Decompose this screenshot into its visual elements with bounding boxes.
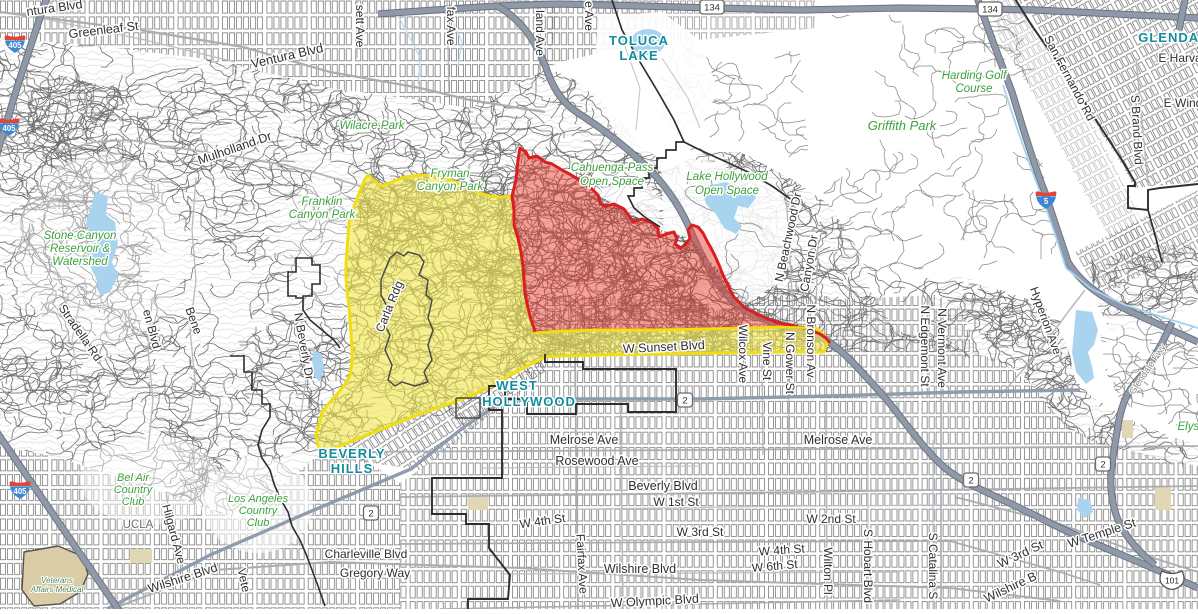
svg-text:Club: Club <box>122 496 145 508</box>
svg-text:405: 405 <box>8 41 22 50</box>
svg-text:2: 2 <box>368 509 373 520</box>
svg-text:HILLS: HILLS <box>331 461 374 476</box>
svg-text:Lake Hollywood: Lake Hollywood <box>686 171 768 183</box>
svg-text:Melrose Ave: Melrose Ave <box>804 433 873 447</box>
svg-text:Rosewood Ave: Rosewood Ave <box>555 454 638 468</box>
svg-text:Wilacre Park: Wilacre Park <box>339 120 405 132</box>
svg-text:Country: Country <box>114 484 154 496</box>
svg-text:134: 134 <box>704 3 720 14</box>
svg-text:Vine St: Vine St <box>760 342 774 381</box>
svg-text:Wilton Pl: Wilton Pl <box>821 547 835 594</box>
svg-text:GLENDALE: GLENDALE <box>1138 30 1198 45</box>
svg-text:Fryman: Fryman <box>431 168 470 180</box>
svg-text:e Ave: e Ave <box>582 1 596 31</box>
svg-text:W 1st St: W 1st St <box>653 495 699 509</box>
svg-text:N Edgemont St: N Edgemont St <box>918 305 932 387</box>
svg-text:Harding Golf: Harding Golf <box>942 70 1008 82</box>
svg-text:Wilshire Blvd: Wilshire Blvd <box>604 562 676 576</box>
svg-text:Beverly Blvd: Beverly Blvd <box>628 479 698 493</box>
svg-text:W 2nd St: W 2nd St <box>806 512 856 526</box>
svg-text:Reservoir &: Reservoir & <box>50 243 110 255</box>
svg-text:Canyon Park: Canyon Park <box>289 209 357 221</box>
svg-text:Wilcox Ave: Wilcox Ave <box>736 325 750 384</box>
svg-text:Melrose Ave: Melrose Ave <box>550 433 619 447</box>
svg-text:Canyon Park: Canyon Park <box>417 181 485 193</box>
svg-text:134: 134 <box>982 5 998 16</box>
svg-text:Club: Club <box>247 517 270 529</box>
svg-text:sett Ave: sett Ave <box>353 5 367 48</box>
svg-text:S Catalina S: S Catalina S <box>926 533 940 600</box>
svg-text:UCLA: UCLA <box>123 519 154 531</box>
svg-text:Affairs Medical: Affairs Medical <box>30 585 84 594</box>
svg-text:fax Ave: fax Ave <box>444 6 458 45</box>
svg-text:LAKE: LAKE <box>619 48 658 63</box>
svg-text:101: 101 <box>1165 576 1179 586</box>
svg-text:Charleville Blvd: Charleville Blvd <box>325 547 408 561</box>
svg-text:2: 2 <box>1100 460 1105 471</box>
svg-text:2: 2 <box>682 396 687 407</box>
svg-text:N Gower St: N Gower St <box>783 332 797 395</box>
svg-text:Course: Course <box>955 83 992 95</box>
svg-text:Elysian: Elysian <box>1177 421 1198 433</box>
svg-text:WEST: WEST <box>496 378 538 393</box>
svg-text:W 3rd St: W 3rd St <box>677 525 724 539</box>
svg-text:S Hobart Blvd: S Hobart Blvd <box>861 529 875 603</box>
svg-text:BEVERLY: BEVERLY <box>318 446 385 461</box>
svg-text:2: 2 <box>968 476 973 487</box>
svg-text:TOLUCA: TOLUCA <box>609 33 669 48</box>
svg-text:HOLLYWOOD: HOLLYWOOD <box>482 394 576 409</box>
svg-text:Watershed: Watershed <box>52 256 108 268</box>
svg-text:Stone Canyon: Stone Canyon <box>44 230 117 242</box>
svg-text:Veterans: Veterans <box>41 576 73 585</box>
svg-text:N Bronson Av: N Bronson Av <box>804 304 818 377</box>
svg-text:N Vermont Ave: N Vermont Ave <box>935 308 949 388</box>
svg-text:land Ave: land Ave <box>533 10 547 56</box>
svg-text:Franklin: Franklin <box>302 196 343 208</box>
svg-text:Gregory Way: Gregory Way <box>340 566 410 580</box>
svg-text:E Wind: E Wind <box>1164 96 1198 110</box>
svg-text:Country: Country <box>239 505 279 517</box>
svg-text:Open Space: Open Space <box>580 176 644 188</box>
svg-text:405: 405 <box>13 487 27 496</box>
svg-text:Griffith Park: Griffith Park <box>868 118 938 133</box>
svg-text:405: 405 <box>2 124 16 133</box>
svg-text:5: 5 <box>1044 197 1049 206</box>
svg-text:E Harva: E Harva <box>1158 51 1198 65</box>
svg-text:Bel Air: Bel Air <box>117 472 150 484</box>
svg-text:Open Space: Open Space <box>695 185 759 197</box>
svg-text:Los Angeles: Los Angeles <box>228 493 289 505</box>
svg-text:Cahuenga-Pass: Cahuenga-Pass <box>571 162 654 174</box>
